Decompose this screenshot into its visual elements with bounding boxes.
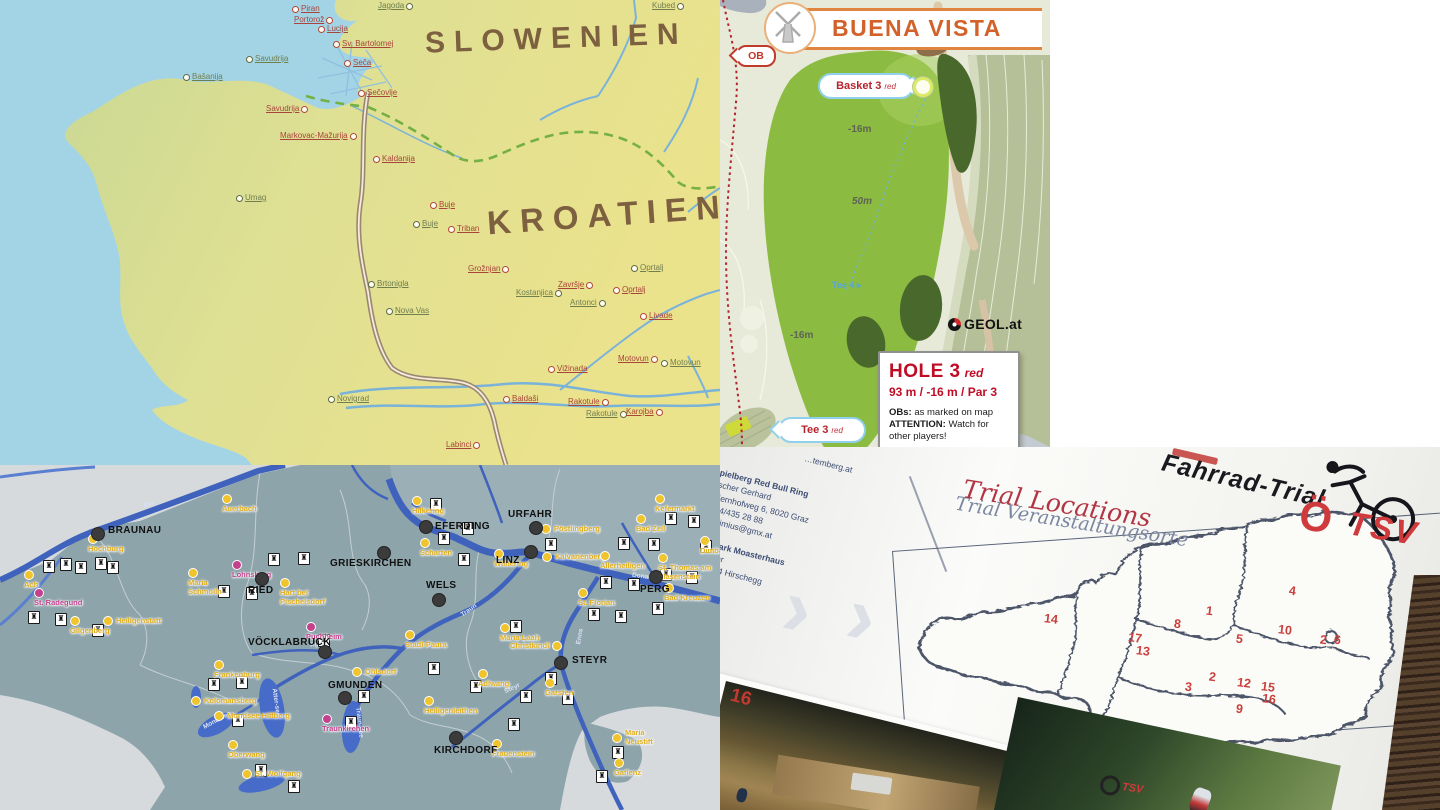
town-dot-icon <box>555 290 562 297</box>
town-label: Savudrija <box>246 55 288 63</box>
town-label: Umag <box>236 194 266 202</box>
city-dot <box>338 691 352 705</box>
castle-icon <box>648 538 660 551</box>
castle-icon <box>60 558 72 571</box>
site-label: Dimbach <box>700 536 720 556</box>
castle-icon <box>520 690 532 703</box>
map-collage: SLOWENIEN KROATIEN Piran Portorož Lucija… <box>0 0 1440 810</box>
ob-badge: OB <box>736 45 776 67</box>
town-label: Novigrad <box>328 395 369 403</box>
town-label: Savudrija <box>266 105 308 113</box>
town-dot-icon <box>661 360 668 367</box>
castle-icon <box>298 552 310 565</box>
town-dot-icon <box>613 287 620 294</box>
site-dot-icon <box>424 696 434 706</box>
site-dot-icon <box>306 622 316 632</box>
castle-icon <box>75 561 87 574</box>
site-dot-icon <box>578 588 588 598</box>
city-dot <box>449 731 463 745</box>
town-label: Oprtalj <box>613 286 646 294</box>
disc-golf-map-art <box>720 0 1440 447</box>
castle-icon <box>28 611 40 624</box>
town-label: Buje <box>430 201 455 209</box>
town-dot-icon <box>301 106 308 113</box>
town-label: Sv. Bartolomej <box>333 40 393 48</box>
town-label: Lucija <box>318 25 348 33</box>
site-dot-icon <box>214 660 224 670</box>
town-dot-icon <box>503 396 510 403</box>
town-dot-icon <box>677 3 684 10</box>
site-label: Frankenburg <box>214 660 260 680</box>
site-label: St. Florian <box>578 588 615 608</box>
castle-icon <box>618 537 630 550</box>
castle-icon <box>288 780 300 793</box>
site-label: Adlwang <box>478 669 509 689</box>
site-label: Heiligenleithen <box>424 696 477 716</box>
castle-icon <box>107 561 119 574</box>
site-label: Gaflenz <box>614 758 641 778</box>
site-label: Scharten <box>420 538 452 558</box>
castle-icon <box>208 678 220 691</box>
trial-page-quadrant: Spielberg Red Bull Ring Fischer Gerhard … <box>720 447 1440 810</box>
town-label: Triban <box>448 225 479 233</box>
town-label: Oprtalj <box>631 264 664 272</box>
castle-icon <box>545 538 557 551</box>
otsv-logo: Ö TSV <box>1291 449 1440 580</box>
site-label: Pöstlingberg <box>541 524 600 534</box>
photo-number-label: 16 <box>728 685 754 711</box>
town-dot-icon <box>236 195 243 202</box>
site-dot-icon <box>614 758 624 768</box>
castle-icon <box>688 515 700 528</box>
site-label: Ohlsdorf <box>352 667 396 677</box>
map-number: 13 <box>1135 643 1151 659</box>
castle-icon <box>665 512 677 525</box>
city-label: URFAHR <box>508 509 552 520</box>
city-label: BRAUNAU <box>108 525 161 536</box>
site-label: Maria Laah <box>500 623 539 643</box>
town-label: Labinci <box>446 441 480 449</box>
city-dot <box>529 521 543 535</box>
site-dot-icon <box>655 494 665 504</box>
city-dot <box>255 572 269 586</box>
site-label: St. Radegund <box>34 588 82 608</box>
site-label: Maria Schmolln <box>188 568 236 596</box>
distance-label: -16m <box>848 124 871 135</box>
site-dot-icon <box>70 616 80 626</box>
castle-icon <box>358 690 370 703</box>
site-label: Kolomansberg <box>191 696 257 706</box>
site-dot-icon <box>214 711 224 721</box>
town-label: Bašanija <box>183 73 223 81</box>
site-label: Auerbach <box>222 494 257 514</box>
city-label: STEYR <box>572 655 607 666</box>
castle-icon <box>55 613 67 626</box>
map-number: 16 <box>1261 691 1277 707</box>
hole-notes: OBs: as marked on map ATTENTION: Watch f… <box>889 407 1009 443</box>
geol-logo: GEOL.at <box>948 316 1022 332</box>
site-dot-icon <box>352 667 362 677</box>
site-label: Mondsee Hilfberg <box>214 711 290 721</box>
city-dot <box>524 545 538 559</box>
city-dot <box>91 527 105 541</box>
photo-rider <box>736 787 749 803</box>
wheel-icon <box>1099 774 1122 797</box>
hole-title: HOLE 3 <box>889 361 961 382</box>
site-dot-icon <box>612 733 622 743</box>
site-label: Maria Neustift <box>612 729 666 746</box>
town-dot-icon <box>350 133 357 140</box>
town-dot-icon <box>413 221 420 228</box>
town-label: Kostanjica <box>516 289 562 297</box>
site-label: Kefermarkt <box>655 494 695 514</box>
site-label: Traunkirchen <box>322 714 369 734</box>
city-label: RIED <box>248 585 274 596</box>
site-dot-icon <box>405 630 415 640</box>
site-label: Hart bei Pischelsdorf <box>280 578 336 606</box>
site-label: Frauenstein <box>492 739 535 759</box>
town-label: Jagoda <box>378 2 413 10</box>
hole-stats: 93 m / -16 m / Par 3 <box>889 385 1009 400</box>
tee-callout: Tee 3red <box>778 417 866 443</box>
site-label: Bad Kreuzen <box>664 583 710 603</box>
site-dot-icon <box>242 769 252 779</box>
site-dot-icon <box>545 678 555 688</box>
distance-label: 50m <box>852 196 872 207</box>
site-label: St. Wolfgang <box>242 769 301 779</box>
site-dot-icon <box>222 494 232 504</box>
castle-icon <box>43 560 55 573</box>
city-dot <box>419 520 433 534</box>
site-dot-icon <box>322 714 332 724</box>
site-dot-icon <box>552 641 562 651</box>
town-dot-icon <box>640 313 647 320</box>
town-label: Kubed <box>652 2 684 10</box>
photo-rider <box>1188 786 1214 810</box>
city-label: GRIESKIRCHEN <box>330 558 411 569</box>
castle-icon <box>458 553 470 566</box>
site-dot-icon <box>228 740 238 750</box>
town-dot-icon <box>502 266 509 273</box>
town-dot-icon <box>318 26 325 33</box>
town-dot-icon <box>586 282 593 289</box>
city-label: PERG <box>640 584 670 595</box>
city-dot <box>554 656 568 670</box>
castle-icon <box>628 578 640 591</box>
town-dot-icon <box>373 156 380 163</box>
town-dot-icon <box>430 202 437 209</box>
town-label: Nova Vas <box>386 307 429 315</box>
site-dot-icon <box>658 553 668 563</box>
town-label: Motovun <box>661 359 701 367</box>
town-label: Završje <box>558 281 593 289</box>
site-dot-icon <box>191 696 201 706</box>
site-label: Stadl-Paura <box>405 630 447 650</box>
map-number: 10 <box>1277 622 1293 638</box>
castle-icon <box>615 610 627 623</box>
site-label: Bad Zell <box>636 514 665 534</box>
city-dot <box>649 570 663 584</box>
town-dot-icon <box>599 300 606 307</box>
town-label: Grožnjan <box>468 265 509 273</box>
site-dot-icon <box>600 551 610 561</box>
town-label: Rakotule <box>586 410 627 418</box>
town-label: Antonci <box>570 299 606 307</box>
site-dot-icon <box>500 623 510 633</box>
town-dot-icon <box>473 442 480 449</box>
map-number: 14 <box>1043 611 1059 627</box>
site-dot-icon <box>280 578 290 588</box>
site-dot-icon <box>700 536 710 546</box>
town-label: Piran <box>292 5 320 13</box>
site-dot-icon <box>188 568 198 578</box>
town-dot-icon <box>631 265 638 272</box>
town-label: Brtonigla <box>368 280 409 288</box>
town-dot-icon <box>326 17 333 24</box>
site-dot-icon <box>232 560 242 570</box>
site-dot-icon <box>34 588 44 598</box>
town-dot-icon <box>358 90 365 97</box>
town-label: Buje <box>413 220 438 228</box>
site-label: Garsten <box>545 678 573 698</box>
town-dot-icon <box>344 60 351 67</box>
town-dot-icon <box>406 3 413 10</box>
disc-golf-quadrant: BUENA VISTA OB Basket 3red -16m 50m -16m… <box>720 0 1440 447</box>
site-label: Hilkering <box>412 496 444 516</box>
town-label: Vižinada <box>548 365 588 373</box>
town-dot-icon <box>246 56 253 63</box>
town-label: Baldaši <box>503 395 538 403</box>
town-label: Seča <box>344 59 371 67</box>
site-label: Oberwang <box>228 740 265 760</box>
town-label: Portorož <box>294 16 333 24</box>
town-label: Karojba <box>626 408 663 416</box>
castle-icon <box>428 662 440 675</box>
site-label: Christkindl <box>510 641 562 651</box>
castle-icon <box>508 718 520 731</box>
distance-label: -16m <box>790 330 813 341</box>
site-dot-icon <box>636 514 646 524</box>
town-label: Livade <box>640 312 673 320</box>
site-dot-icon <box>542 552 552 562</box>
site-dot-icon <box>478 669 488 679</box>
town-dot-icon <box>333 41 340 48</box>
city-dot <box>432 593 446 607</box>
town-label: Markovac-Mažurija <box>280 132 357 140</box>
hole-info-box: HOLE 3red 93 m / -16 m / Par 3 OBs: as m… <box>878 351 1020 447</box>
map-number: 12 <box>1236 675 1252 691</box>
site-label: Allerheiligen <box>600 551 645 571</box>
site-label: Ach <box>24 570 38 590</box>
site-label: St. Thomas am Blasenstein <box>658 553 716 581</box>
town-dot-icon <box>292 6 299 13</box>
basket-callout: Basket 3red <box>818 73 914 99</box>
town-label: Sečovlje <box>358 89 397 97</box>
course-title: BUENA VISTA <box>832 15 1002 42</box>
basket-icon <box>916 80 930 94</box>
istria-map-quadrant: SLOWENIEN KROATIEN Piran Portorož Lucija… <box>0 0 720 465</box>
tee4-label: Tee 4 <box>832 280 861 291</box>
castle-icon <box>596 770 608 783</box>
site-label: Kalvarienberg <box>542 552 605 562</box>
city-label: EFERDING <box>435 521 490 532</box>
castle-icon <box>588 608 600 621</box>
town-dot-icon <box>448 226 455 233</box>
town-dot-icon <box>651 356 658 363</box>
town-dot-icon <box>548 366 555 373</box>
site-dot-icon <box>412 496 422 506</box>
castle-icon <box>652 602 664 615</box>
site-dot-icon <box>420 538 430 548</box>
town-dot-icon <box>656 409 663 416</box>
town-dot-icon <box>368 281 375 288</box>
castle-icon <box>95 557 107 570</box>
geol-logo-icon <box>948 318 961 331</box>
city-label: WELS <box>426 580 457 591</box>
town-label: Kaldanija <box>373 155 415 163</box>
town-dot-icon <box>386 308 393 315</box>
town-dot-icon <box>328 396 335 403</box>
site-dot-icon <box>24 570 34 580</box>
site-dot-icon <box>103 616 113 626</box>
town-label: Rakotule <box>568 398 609 406</box>
site-label: Heiligenstatt <box>103 616 161 626</box>
town-dot-icon <box>602 399 609 406</box>
town-dot-icon <box>183 74 190 81</box>
city-label: LINZ <box>496 555 520 566</box>
austria-sights-quadrant: Inn Donau Traun Ager Enns Steyr Atter-se… <box>0 465 720 810</box>
city-label: KIRCHDORF <box>434 745 498 756</box>
town-label: Motovun <box>618 355 658 363</box>
city-label: GMUNDEN <box>328 680 382 691</box>
city-label: VÖCKLABRUCK <box>248 637 331 648</box>
